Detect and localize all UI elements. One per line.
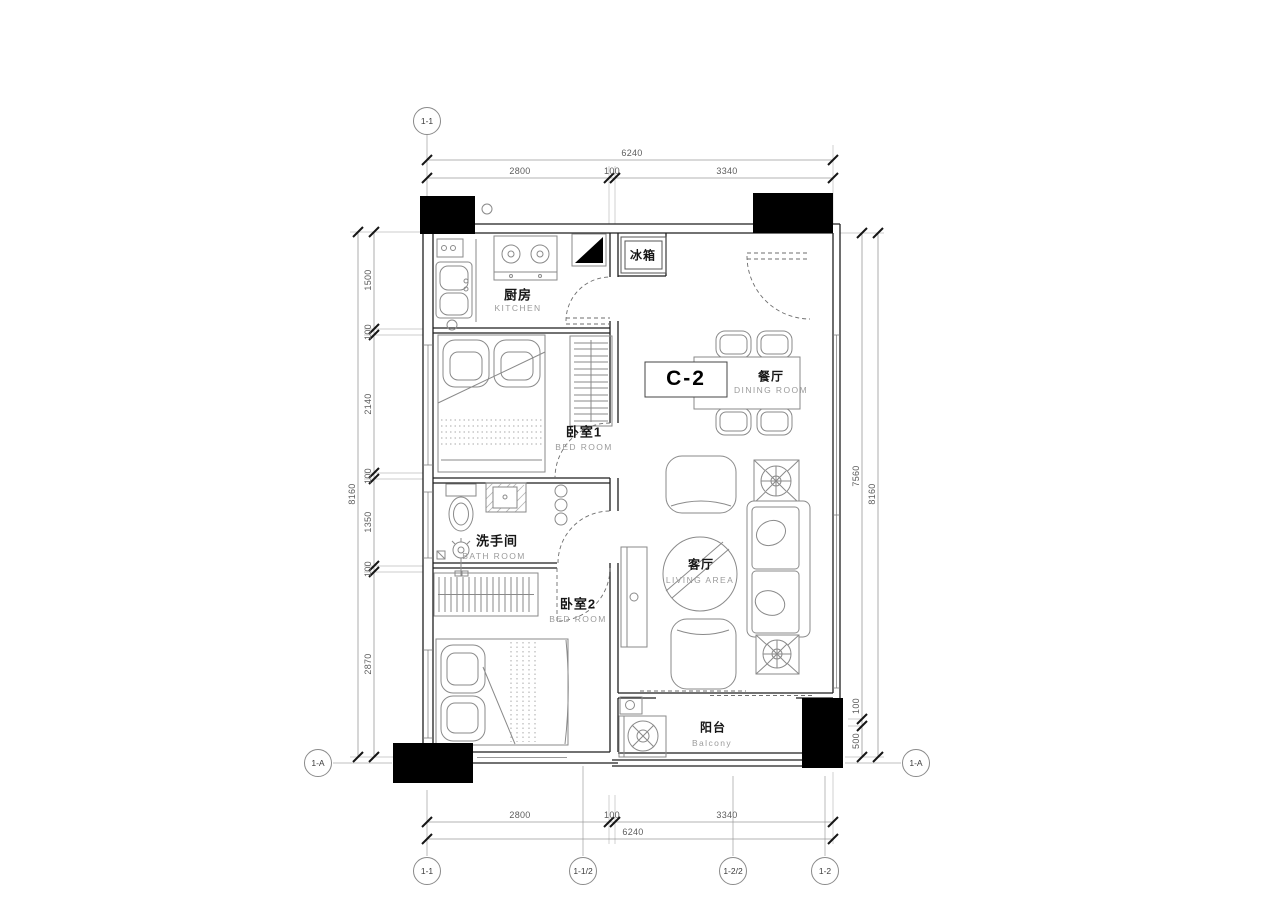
dining-label-en: DINING ROOM xyxy=(734,385,808,395)
dim-left-s6: 100 xyxy=(363,561,373,577)
dim-bottom-s1: 2800 xyxy=(509,810,530,820)
grid-marker-right-1-A: 1-A xyxy=(902,749,930,777)
dim-left-s7: 2870 xyxy=(363,653,373,674)
dim-right-s1: 7560 xyxy=(851,465,861,486)
entrance-door-arc xyxy=(747,253,810,319)
floor-plan: 厨房 KITCHEN 冰箱 C-2 餐厅 DINING ROOM 卧室1 BED… xyxy=(0,0,1280,904)
grid-marker-bottom-1-2-2: 1-2/2 xyxy=(719,857,747,885)
bedroom2-bed xyxy=(436,639,568,745)
bedroom1-label-cn: 卧室1 xyxy=(566,422,602,441)
bedroom2-label-cn: 卧室2 xyxy=(560,594,596,613)
bedroom2-label-en: BED ROOM xyxy=(549,614,606,624)
grid-marker-bottom-1-2: 1-2 xyxy=(811,857,839,885)
grid-marker-left-1-A: 1-A xyxy=(304,749,332,777)
dim-right-s2: 100 xyxy=(851,698,861,714)
bathroom-label-en: BATH ROOM xyxy=(462,551,525,561)
unit-label: C-2 xyxy=(666,367,706,391)
dim-bottom-total: 6240 xyxy=(622,827,643,837)
dining-label-cn: 餐厅 xyxy=(758,368,784,385)
kitchen-door-arc xyxy=(566,277,610,324)
dim-top-s1: 2800 xyxy=(509,166,530,176)
living-label-en: LIVING AREA xyxy=(666,575,734,585)
kitchen-label-en: KITCHEN xyxy=(494,303,541,313)
grid-marker-bottom-1-1-2: 1-1/2 xyxy=(569,857,597,885)
dim-bottom-s3: 3340 xyxy=(716,810,737,820)
bedroom2-wardrobe xyxy=(434,573,538,616)
armchair-bottom xyxy=(671,619,736,689)
living-set xyxy=(621,456,810,689)
dim-bottom-s2: 100 xyxy=(604,810,620,820)
bedroom1-bed xyxy=(438,335,545,472)
bedroom1-wardrobe xyxy=(570,336,612,426)
dim-left-s5: 1350 xyxy=(363,511,373,532)
dim-top-s2: 100 xyxy=(604,166,620,176)
dim-top-total: 6240 xyxy=(621,148,642,158)
dim-left-s1: 1500 xyxy=(363,269,373,290)
balcony-fixtures xyxy=(619,697,666,757)
bedroom1-label-en: BED ROOM xyxy=(555,442,612,452)
balcony-label-cn: 阳台 xyxy=(700,719,726,736)
bathroom-label-cn: 洗手间 xyxy=(476,531,518,550)
grid-marker-bottom-1-1: 1-1 xyxy=(413,857,441,885)
dim-left-s3: 2140 xyxy=(363,393,373,414)
dim-top-s3: 3340 xyxy=(716,166,737,176)
dim-right-total: 8160 xyxy=(867,483,877,504)
bathroom-door-arc xyxy=(558,511,610,563)
dim-left-total: 8160 xyxy=(347,483,357,504)
kitchen-label-cn: 厨房 xyxy=(504,285,532,304)
dim-left-s4: 100 xyxy=(363,468,373,484)
bathroom-fixtures xyxy=(437,483,567,576)
dim-right-s3: 500 xyxy=(851,733,861,749)
grid-marker-top-1-1: 1-1 xyxy=(413,107,441,135)
living-label-cn: 客厅 xyxy=(688,556,714,573)
tv-cabinet xyxy=(621,547,647,647)
plan-linework xyxy=(0,0,1280,904)
balcony-label-en: Balcony xyxy=(692,738,732,748)
range-hood-icon xyxy=(575,237,603,263)
fridge-label: 冰箱 xyxy=(630,247,656,264)
dim-left-s2: 100 xyxy=(363,324,373,340)
